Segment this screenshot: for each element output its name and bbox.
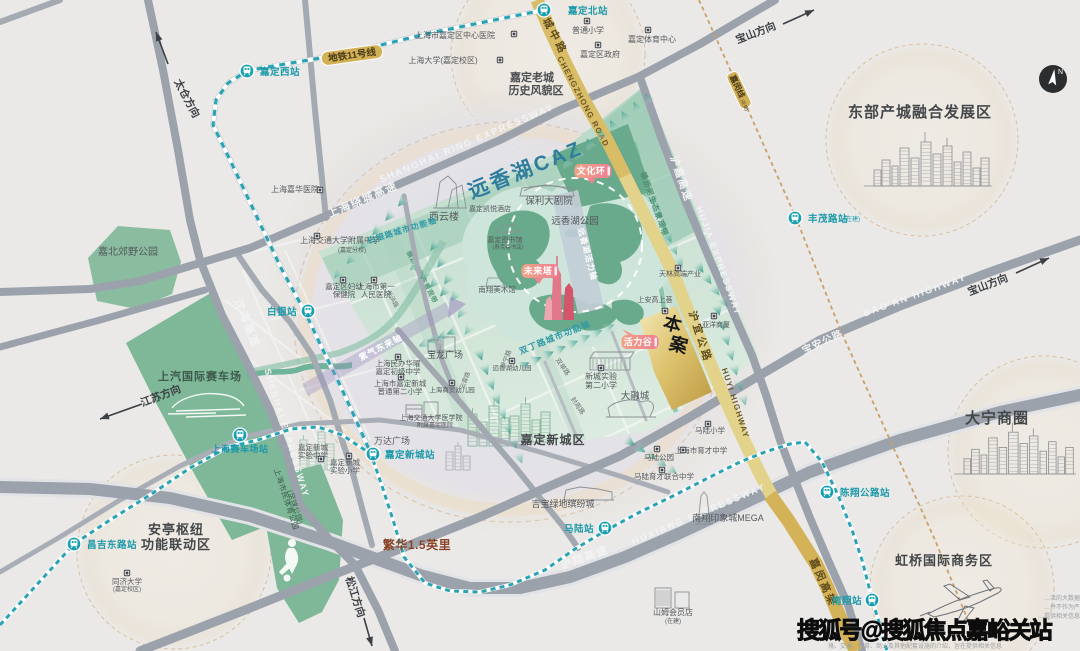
svg-text:丰茂路站: 丰茂路站 [808,213,848,225]
svg-text:(寿克斋书店): (寿克斋书店) [492,243,523,251]
svg-text:(在建): (在建) [665,617,681,625]
svg-text:白银站: 白银站 [267,306,297,318]
svg-text:…活的大数据: …活的大数据 [1044,594,1080,602]
svg-text:嘉定新城站: 嘉定新城站 [384,449,435,461]
svg-text:第二小学: 第二小学 [585,380,617,390]
svg-text:马陆站: 马陆站 [564,523,594,535]
svg-text:南翔站: 南翔站 [832,595,862,607]
svg-text:上海市嘉定区中心医院: 上海市嘉定区中心医院 [415,30,495,40]
svg-text:(嘉定分校): (嘉定分校) [338,246,366,254]
svg-text:历史风貌区: 历史风貌区 [509,83,564,97]
svg-text:嘉北郊野公园: 嘉北郊野公园 [98,245,158,258]
svg-text:实验小学: 实验小学 [330,465,360,475]
svg-text:上安高上荟: 上安高上荟 [638,295,673,304]
svg-text:文化环: 文化环 [576,165,606,176]
svg-text:嘉定凯悦酒店: 嘉定凯悦酒店 [469,204,511,213]
svg-text:活力谷: 活力谷 [624,336,653,347]
svg-text:马陆公园: 马陆公园 [644,452,674,462]
svg-text:上汽国际赛车场: 上汽国际赛车场 [158,369,242,383]
svg-text:新城实验: 新城实验 [585,371,617,381]
svg-text:保健院: 保健院 [333,289,356,299]
svg-text:上海大学(嘉定校区): 上海大学(嘉定校区) [408,55,478,65]
svg-text:搜狐号@搜狐焦点嘉峪关站: 搜狐号@搜狐焦点嘉峪关站 [797,617,1053,643]
svg-text:大融城: 大融城 [621,390,650,402]
svg-text:嘉定北站: 嘉定北站 [567,5,608,17]
svg-text:普通第二小学: 普通第二小学 [378,386,423,396]
svg-text:繁华1.5英里: 繁华1.5英里 [383,537,451,552]
svg-text:(在建): (在建) [844,215,860,223]
svg-text:南翔印象城MEGA: 南翔印象城MEGA [692,512,764,523]
svg-text:陈翔公路站: 陈翔公路站 [840,487,890,499]
svg-text:嘉定老城: 嘉定老城 [509,70,554,84]
svg-text:嘉定西站: 嘉定西站 [259,66,300,78]
svg-text:远香湖幼儿园: 远香湖幼儿园 [493,363,532,372]
svg-text:亚洋商厦: 亚洋商厦 [702,320,730,329]
svg-text:(嘉定校区): (嘉定校区) [113,585,141,593]
svg-text:昌吉东路站: 昌吉东路站 [87,539,137,551]
svg-text:普通小学: 普通小学 [572,25,604,35]
svg-text:未来塔: 未来塔 [523,265,553,276]
svg-text:同济大学: 同济大学 [112,576,142,586]
svg-text:安亭枢纽: 安亭枢纽 [148,522,204,537]
svg-text:山姆会员店: 山姆会员店 [653,607,693,617]
svg-text:人民医院: 人民医院 [361,289,391,299]
svg-text:上海嘉华医院: 上海嘉华医院 [271,184,319,194]
svg-text:上海交通大学医学院: 上海交通大学医学院 [400,413,463,422]
svg-text:嘉定区政府: 嘉定区政府 [580,49,620,59]
svg-text:上海赛车场站: 上海赛车场站 [211,443,268,454]
svg-text:附属嘉定医院: 附属嘉定医院 [417,421,453,429]
svg-text:万达广场: 万达广场 [374,435,410,446]
svg-text:上海商贸幼儿园: 上海商贸幼儿园 [429,385,475,394]
svg-text:虹桥国际商务区: 虹桥国际商务区 [895,553,993,568]
svg-text:东部产城融合发展区: 东部产城融合发展区 [848,103,992,121]
svg-text:宝龙广场: 宝龙广场 [427,349,463,360]
svg-text:嘉定图书馆: 嘉定图书馆 [488,235,523,244]
svg-text:保利大剧院: 保利大剧院 [525,195,573,207]
svg-text:大宁商圈: 大宁商圈 [965,409,1029,427]
svg-text:吉宝绿地缤纷城: 吉宝绿地缤纷城 [531,498,594,509]
svg-text:…并不作为严: …并不作为严 [1044,603,1080,611]
svg-text:南翔美术馆: 南翔美术馆 [478,284,516,294]
svg-text:嘉定体育中心: 嘉定体育中心 [628,34,676,44]
svg-text:境、交通、教育、商业及其他配套设施的介绍，旨在提供相关信息: 境、交通、教育、商业及其他配套设施的介绍，旨在提供相关信息 [828,642,1002,650]
svg-text:…提供相关信息: …提供相关信息 [1038,612,1080,620]
svg-text:功能联动区: 功能联动区 [141,537,211,552]
svg-text:N: N [1058,69,1063,76]
svg-text:远香湖公园: 远香湖公园 [551,216,599,227]
svg-text:嘉定新城区: 嘉定新城区 [519,432,585,447]
